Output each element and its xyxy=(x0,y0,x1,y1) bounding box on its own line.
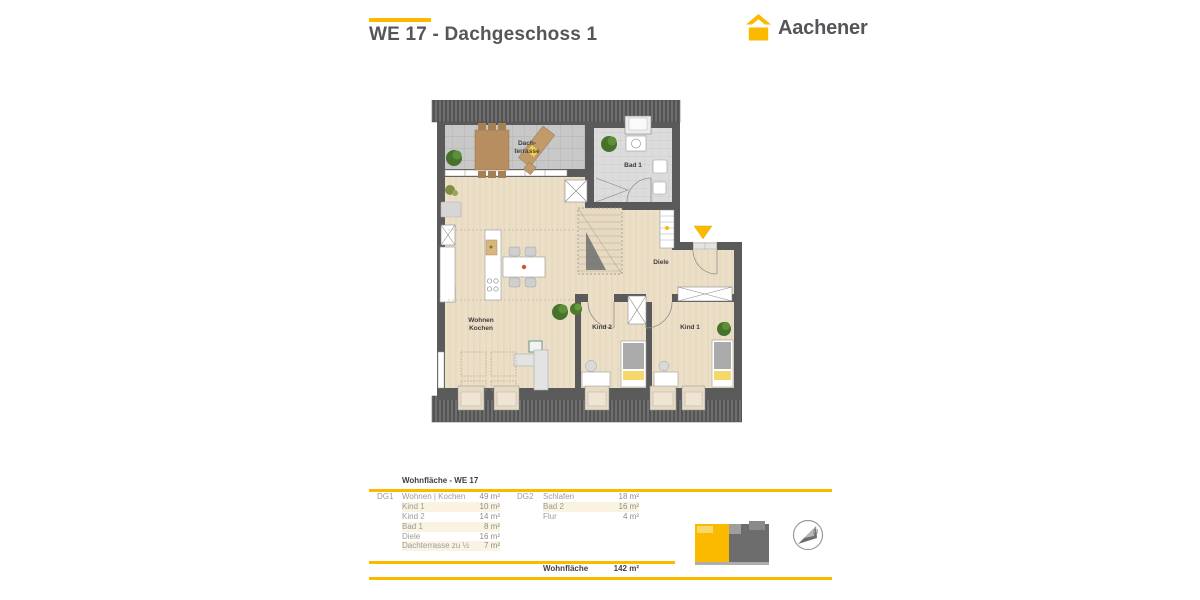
side-table xyxy=(441,202,461,217)
room-name: Dachterrasse zu ½ xyxy=(402,541,469,551)
table-row: Flur4 m² xyxy=(543,512,639,522)
room-name: Flur xyxy=(543,512,557,522)
room-area: 7 m² xyxy=(484,541,500,551)
brand-name: Aachener xyxy=(778,17,868,40)
page-title: WE 17 - Dachgeschoss 1 xyxy=(369,24,597,46)
title-accent-bar xyxy=(369,18,431,22)
table-row: Wohnen | Kochen49 m² xyxy=(402,492,500,502)
room-area: 49 m² xyxy=(480,492,500,502)
table-row: Diele16 m² xyxy=(402,532,500,542)
brand-logo: Aachener xyxy=(746,14,868,42)
kind1-bed xyxy=(712,340,733,387)
house-logo-icon xyxy=(746,14,771,42)
room-area: 8 m² xyxy=(484,522,500,532)
terrace-table xyxy=(475,123,509,178)
table-row: Kind 214 m² xyxy=(402,512,500,522)
total-label: Wohnfläche xyxy=(543,564,588,574)
total-row: Wohnfläche 142 m² xyxy=(543,564,639,574)
room-name: Kind 1 xyxy=(402,502,425,512)
room-area: 18 m² xyxy=(619,492,639,502)
label-diele: Diele xyxy=(653,259,669,266)
area-table-title: Wohnfläche - WE 17 xyxy=(402,476,478,485)
terrace-floor xyxy=(445,125,585,169)
group-label-dg2: DG2 xyxy=(517,492,541,501)
label-kind1: Kind 1 xyxy=(680,324,700,331)
bath-window xyxy=(625,116,651,134)
divider-bottom xyxy=(369,577,832,580)
room-name: Wohnen | Kochen xyxy=(402,492,465,502)
label-wohnen-1: Wohnen xyxy=(468,317,494,324)
room-name: Diele xyxy=(402,532,420,542)
label-terrace-2: terrasse xyxy=(514,148,540,155)
room-area: 10 m² xyxy=(480,502,500,512)
area-table: Wohnfläche - WE 17 DG1 Wohnen | Kochen49… xyxy=(369,476,832,582)
dg2-rows: Schlafen18 m² Bad 216 m² Flur4 m² xyxy=(543,492,639,522)
group-label-dg1: DG1 xyxy=(377,492,401,501)
table-row: Schlafen18 m² xyxy=(543,492,639,502)
room-area: 16 m² xyxy=(480,532,500,542)
table-row: Dachterrasse zu ½7 m² xyxy=(402,541,500,551)
table-row: Bad 18 m² xyxy=(402,522,500,532)
entrance-arrow-icon xyxy=(694,226,712,239)
total-value: 142 m² xyxy=(614,564,639,574)
dg1-rows: Wohnen | Kochen49 m² Kind 110 m² Kind 21… xyxy=(402,492,500,551)
mini-map xyxy=(693,518,773,570)
room-area: 16 m² xyxy=(619,502,639,512)
room-name: Bad 2 xyxy=(543,502,564,512)
label-bad1: Bad 1 xyxy=(624,162,642,169)
room-area: 14 m² xyxy=(480,512,500,522)
floor-plan: Dach- terrasse Bad 1 Diele Wohnen Kochen… xyxy=(428,100,742,424)
hall-shelf xyxy=(660,210,674,248)
label-wohnen-2: Kochen xyxy=(469,325,493,332)
kind2-bed xyxy=(621,341,646,387)
room-name: Bad 1 xyxy=(402,522,423,532)
table-row: Bad 216 m² xyxy=(543,502,639,512)
side-window xyxy=(438,352,444,388)
room-name: Kind 2 xyxy=(402,512,425,522)
stairs xyxy=(578,208,622,274)
room-area: 4 m² xyxy=(623,512,639,522)
table-row: Kind 110 m² xyxy=(402,502,500,512)
compass-icon: N xyxy=(792,519,824,553)
label-terrace-1: Dach- xyxy=(518,140,536,147)
room-name: Schlafen xyxy=(543,492,574,502)
label-kind2: Kind 2 xyxy=(592,324,612,331)
